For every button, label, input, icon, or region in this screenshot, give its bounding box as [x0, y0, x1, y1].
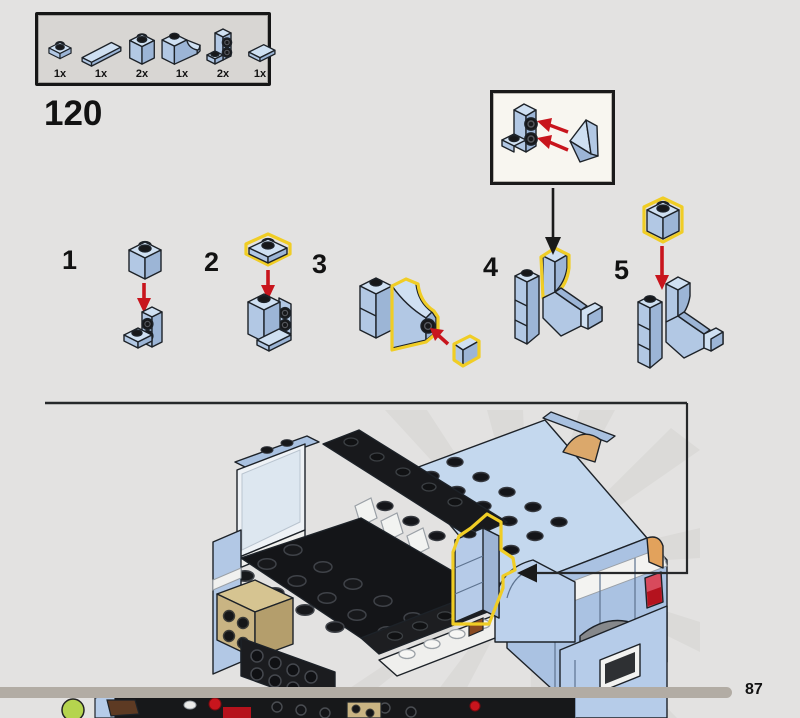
substep-4-diagram	[497, 244, 609, 370]
part-qty-label: 2x	[136, 69, 148, 80]
callout-inner	[493, 93, 612, 182]
plate-1x1-icon	[43, 34, 77, 68]
substep-4-number: 4	[483, 252, 498, 283]
part-qty-label: 1x	[176, 69, 188, 80]
lego-instruction-page: { "page": { "step_number": "120", "page_…	[0, 0, 800, 718]
substep-3-number: 3	[312, 249, 327, 280]
callout-detail-box	[490, 90, 615, 185]
step-number: 120	[44, 94, 102, 134]
substep-3-diagram	[336, 262, 486, 384]
callout-red-arrows	[537, 118, 568, 150]
brick-curved-cutout-icon	[159, 30, 205, 68]
parts-box: 1x 1x 2x	[35, 12, 271, 86]
callout-assembly-diagram	[494, 94, 611, 181]
part-qty-label: 1x	[54, 69, 66, 80]
parts-box-inner: 1x 1x 2x	[38, 15, 268, 83]
part-brick-1x1: 2x	[125, 30, 159, 80]
page-progress-bar	[0, 687, 732, 698]
part-plate-1x1: 1x	[43, 34, 77, 80]
substep-2-diagram	[227, 230, 319, 360]
page-number: 87	[745, 681, 785, 699]
part-qty-label: 2x	[217, 69, 229, 80]
slope-wedge-icon	[77, 34, 125, 68]
part-qty-label: 1x	[254, 69, 266, 80]
main-model-illustration	[55, 410, 700, 718]
substep-1-diagram	[100, 237, 190, 355]
tile-1x2-icon	[241, 40, 279, 68]
bracket-two-studs-icon	[205, 26, 241, 68]
part-slope-wedge: 1x	[77, 34, 125, 80]
part-brick-curved: 1x	[159, 30, 205, 80]
part-tile-1x2: 1x	[241, 40, 279, 80]
substep-1-number: 1	[62, 245, 77, 276]
substep-5-diagram	[626, 192, 726, 374]
brick-1x1-icon	[125, 30, 159, 68]
substep-2-number: 2	[204, 247, 219, 278]
substep-5-number: 5	[614, 255, 629, 286]
part-qty-label: 1x	[95, 69, 107, 80]
part-bracket-side-studs: 2x	[205, 26, 241, 80]
